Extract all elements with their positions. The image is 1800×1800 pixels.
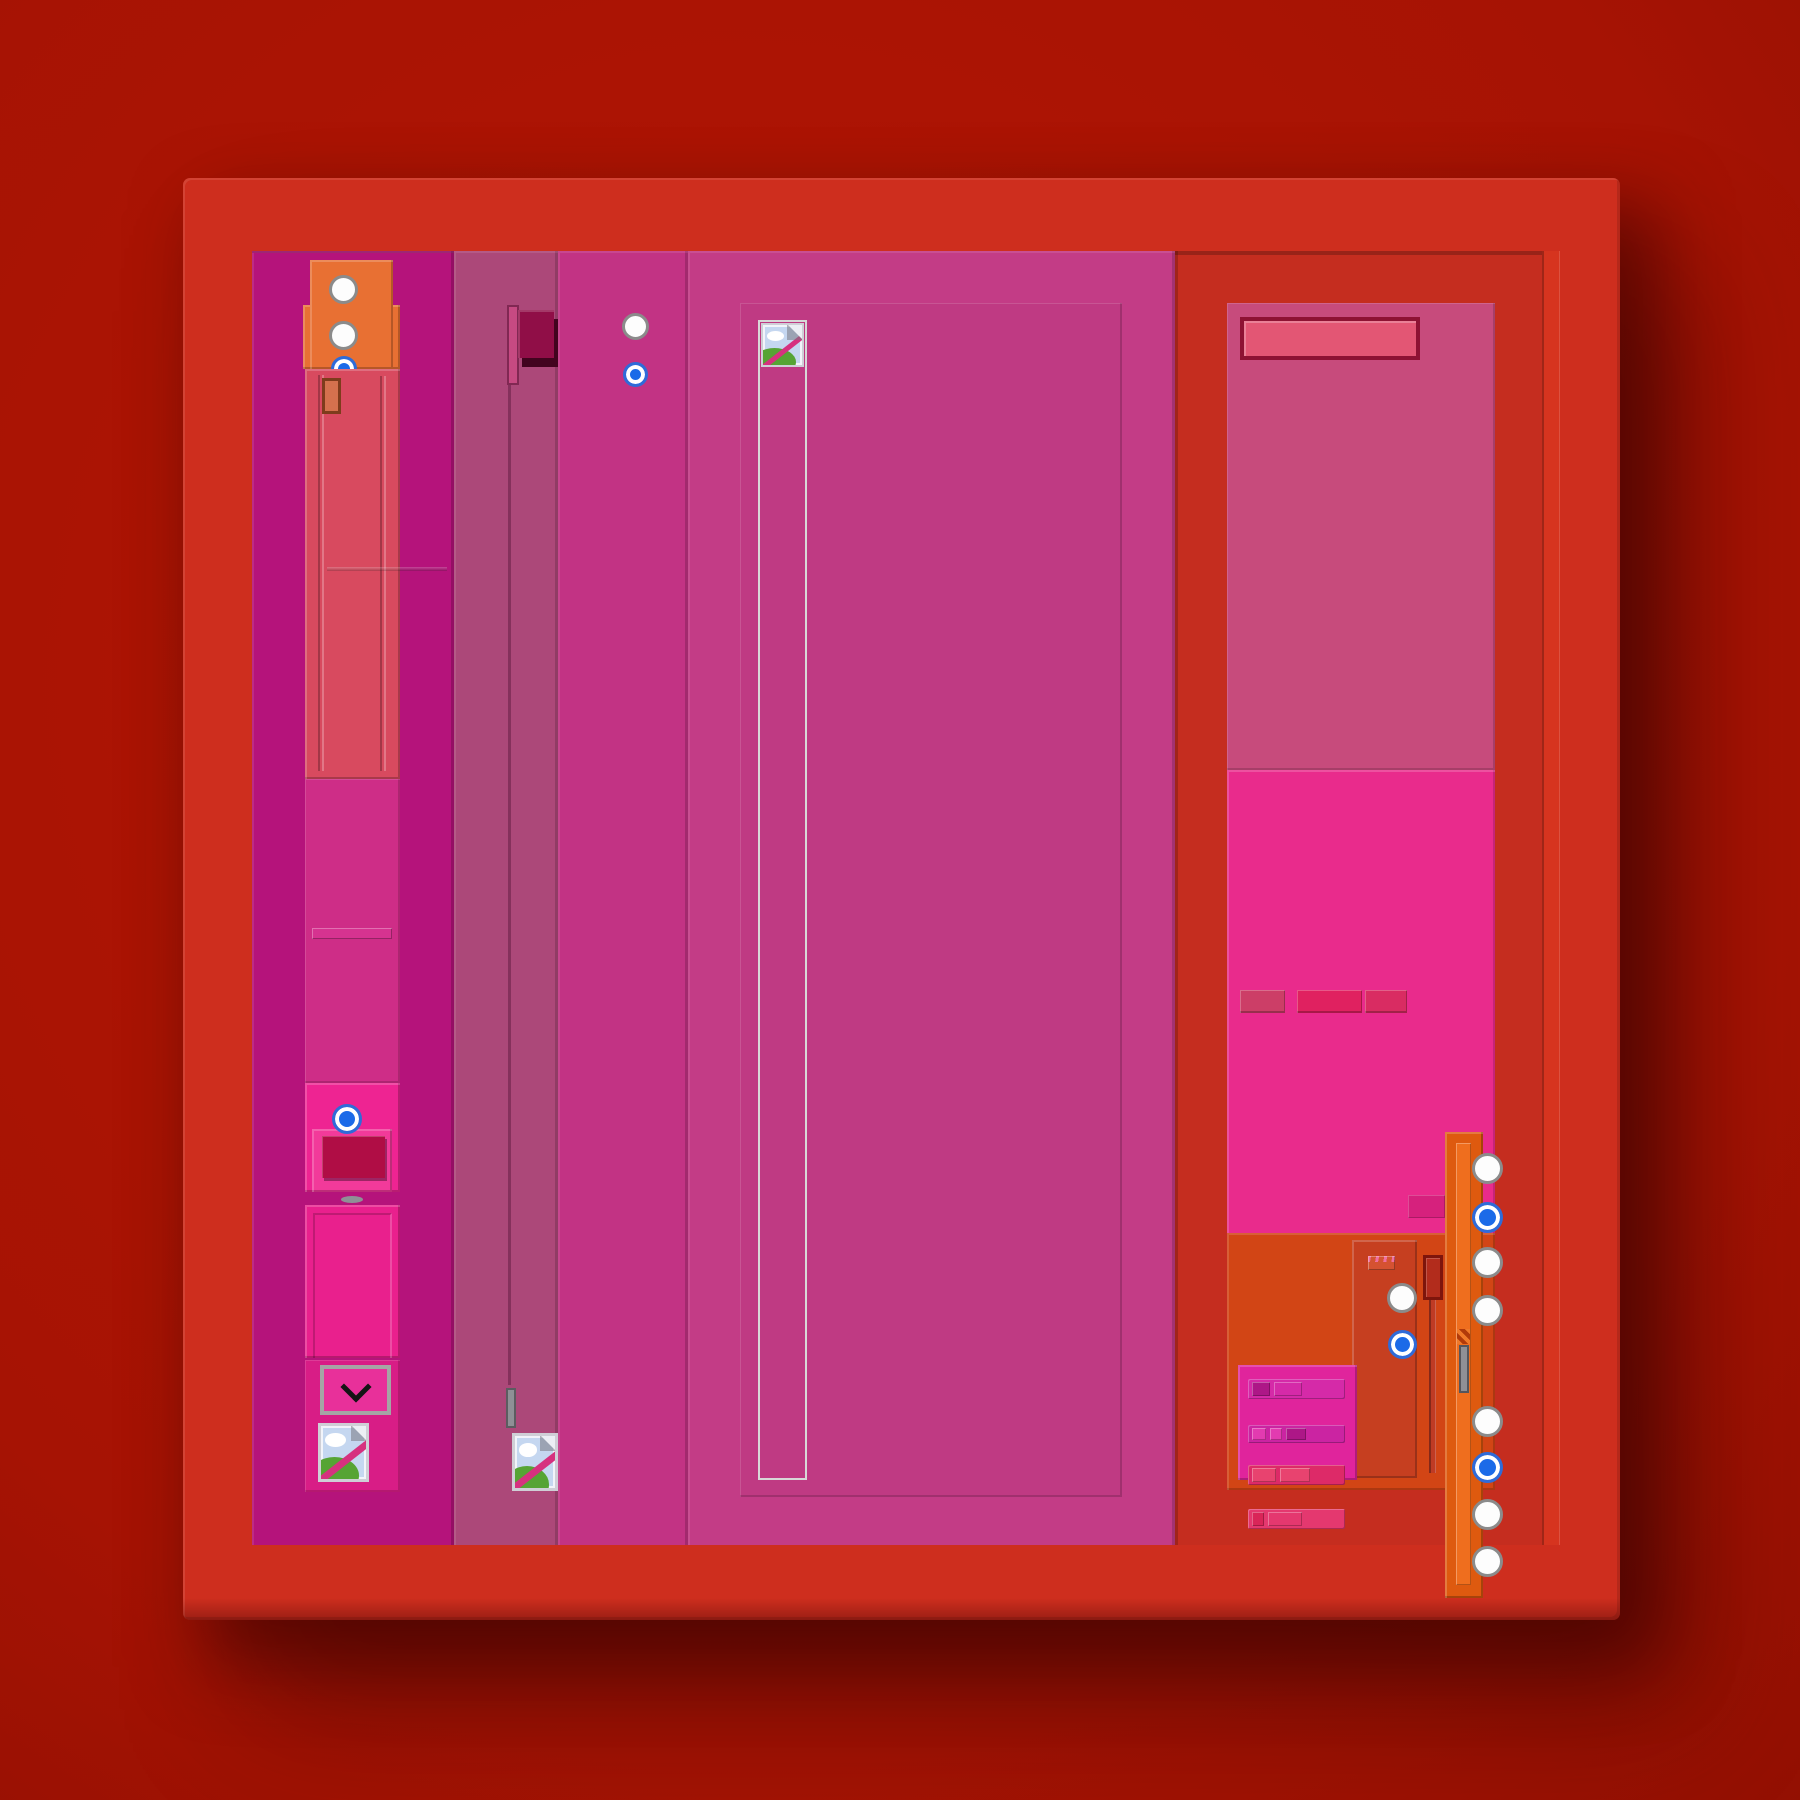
broken-image-icon [318,1423,369,1482]
pink-panel-inset [313,1213,392,1358]
section-divider [312,928,392,939]
slider-block[interactable] [1423,1255,1443,1300]
list-item[interactable] [1248,1509,1345,1529]
radio-button[interactable] [1472,1247,1503,1278]
list-item[interactable] [1248,1379,1345,1399]
orange-swatch[interactable] [322,378,341,414]
card-groove-left [318,375,324,771]
list-box [1238,1365,1357,1480]
row-segment [1252,1428,1266,1440]
radio-button[interactable] [623,362,648,387]
radio-button[interactable] [1388,1330,1417,1359]
icon-fold [351,1425,367,1441]
corner-tab[interactable] [1408,1195,1445,1218]
right-edge-strip [1542,251,1560,1545]
radio-button[interactable] [1472,1406,1503,1437]
radio-button[interactable] [1472,1452,1503,1483]
main-inset-panel [740,303,1122,1497]
radio-button[interactable] [1472,1499,1503,1530]
icon-cloud [767,331,785,341]
panels-area [252,251,1560,1545]
segment-1[interactable] [1240,990,1285,1013]
radio-button[interactable] [1472,1546,1503,1577]
document-strip[interactable] [758,320,807,1480]
column3-panel [558,251,688,1545]
card-top-section [1227,303,1495,770]
striped-chip[interactable] [1368,1256,1395,1270]
row-segment [1286,1428,1306,1440]
grab-dot[interactable] [341,1196,363,1203]
icon-fold [540,1435,556,1451]
scrollbar-track[interactable] [1445,1132,1483,1598]
radio-button[interactable] [329,321,358,350]
sidebar-pink-panel [305,1205,400,1358]
title-field[interactable] [1240,317,1420,360]
app-window [183,178,1620,1620]
sidebar-bottom-container [305,1360,400,1492]
radio-button[interactable] [1387,1283,1417,1313]
broken-image-icon [512,1433,558,1491]
row-segment [1274,1382,1302,1396]
row-segment [1252,1468,1276,1482]
radio-button[interactable] [332,1104,362,1134]
segment-2[interactable] [1297,990,1362,1013]
list-item[interactable] [1248,1425,1345,1443]
push-button-frame [312,1129,392,1192]
icon-cloud [519,1443,537,1457]
radio-button[interactable] [1472,1153,1503,1184]
sidebar-ridge [327,567,447,571]
column2-panel [454,251,558,1545]
sidebar-panel [252,251,454,1545]
row-segment [1268,1512,1302,1526]
slider-handle[interactable] [1459,1345,1469,1393]
sidebar-section [305,779,400,1083]
radio-button[interactable] [622,313,649,340]
card-groove-right [380,376,386,771]
radio-button[interactable] [1472,1202,1503,1233]
main-content-panel [688,251,1175,1545]
row-segment [1252,1382,1270,1396]
radio-button[interactable] [329,275,358,304]
chevron-down-icon [340,1371,371,1402]
icon-cloud [325,1433,346,1447]
segmented-control[interactable] [1240,990,1407,1013]
sidebar-button-block [305,1083,400,1192]
row-segment [1280,1468,1310,1482]
slider-track[interactable] [1429,1300,1436,1473]
inner-tool-card [1352,1240,1417,1478]
icon-fold [787,324,803,340]
segment-3[interactable] [1365,990,1407,1013]
radio-button[interactable] [1472,1295,1503,1326]
row-segment [1270,1428,1282,1440]
list-item[interactable] [1248,1465,1345,1485]
column2-groove [508,385,511,1385]
orange-tool-block [310,260,393,369]
push-button[interactable] [322,1136,385,1178]
sidebar-tool-card [305,369,400,779]
broken-image-icon [761,323,804,367]
dropdown-select[interactable] [320,1365,391,1415]
dark-swatch-square[interactable] [518,310,554,358]
slider-handle[interactable] [506,1388,516,1428]
right-region [1175,251,1542,1545]
row-segment [1252,1512,1264,1526]
scrollbar-notch [1457,1329,1470,1344]
